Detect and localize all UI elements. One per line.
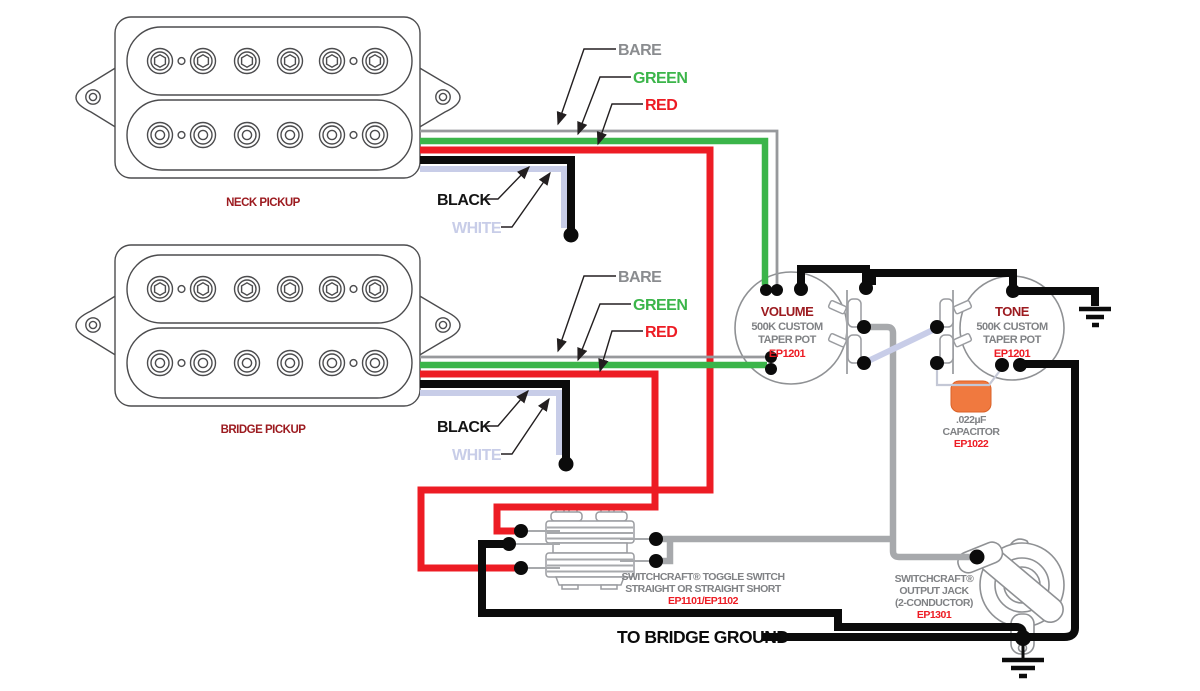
bridge-pickup-label: BRIDGE PICKUP [221,424,307,436]
bridge-ground-note: TO BRIDGE GROUND [617,627,789,647]
tone-pot-spec1: 500K CUSTOM [976,321,1048,333]
jack-type: (2-CONDUCTOR) [895,597,973,609]
neck-pickup [76,17,460,178]
neck-black-label: BLACK [437,192,491,209]
jack-brand: SWITCHCRAFT® [895,573,974,585]
tone-pot-part: EP1201 [994,348,1031,360]
neck-green-label: GREEN [633,70,687,87]
volume-pot-spec1: 500K CUSTOM [751,321,823,333]
jack-part: EP1301 [917,609,952,621]
capacitor-value: .022µF [956,414,987,426]
bridge-bare-label: BARE [618,269,662,286]
bridge-pickup [76,245,460,406]
volume-pot-name: VOLUME [761,304,814,319]
neck-white-label: WHITE [452,220,502,237]
switch-part: EP1101/EP1102 [668,595,739,607]
bridge-black-label: BLACK [437,419,491,436]
bridge-white-label: WHITE [452,447,502,464]
volume-tone-jumper [864,328,937,363]
capacitor-name: CAPACITOR [943,426,1001,438]
volume-pot-part: EP1201 [769,348,806,360]
diagram-canvas: BARE GREEN RED BLACK WHITE BARE GREEN RE… [0,0,1200,691]
neck-bare-label: BARE [618,42,662,59]
bridge-red-label: RED [645,324,677,341]
ground-symbol-top [1079,309,1111,325]
switch-type: STRAIGHT OR STRAIGHT SHORT [625,583,782,595]
bridge-green-label: GREEN [633,297,687,314]
capacitor-part: EP1022 [954,438,989,450]
volume-pot-spec2: TAPER POT [758,334,816,346]
tone-pot-name: TONE [995,304,1030,319]
neck-red-label: RED [645,97,677,114]
tone-pot-spec2: TAPER POT [983,334,1041,346]
switch-name: SWITCHCRAFT® TOGGLE SWITCH [621,571,784,583]
ground-symbol-bottom [1002,660,1044,676]
neck-pickup-label: NECK PICKUP [226,197,301,209]
jack-name: OUTPUT JACK [899,585,969,597]
wiring-diagram: BARE GREEN RED BLACK WHITE BARE GREEN RE… [0,0,1200,691]
